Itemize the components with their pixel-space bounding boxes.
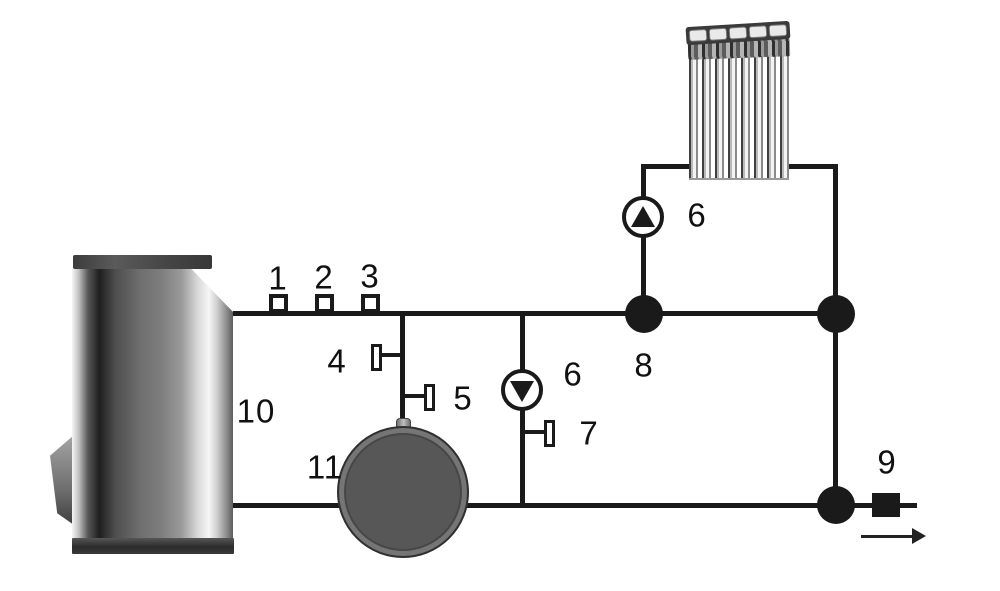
radiator-cap [749,25,768,38]
boiler-top-cap [73,255,212,269]
label-4: 4 [327,345,346,378]
radiator-right-connection-pipe [786,164,838,169]
sensor-5-stem [404,394,426,398]
label-3: 3 [360,260,379,293]
label-9: 9 [877,446,896,479]
boiler [50,253,240,556]
pipe-tapping-2 [315,294,334,313]
boiler-body [72,267,233,553]
label-5: 5 [453,382,472,415]
outlet-fitting [872,493,900,517]
label-8: 8 [634,349,653,382]
radiator-cap [709,28,728,41]
junction-node-bottom-right [817,486,855,524]
junction-node-top-right [817,295,855,333]
sensor-7 [544,420,555,447]
radiator [686,20,792,180]
radiator-cap [769,24,788,37]
label-7: 7 [579,417,598,450]
pump-boiler-circuit [501,369,543,411]
flow-direction-arrowhead-icon [912,528,926,544]
pipe-tapping-1 [269,294,288,313]
junction-node-8 [625,295,663,333]
sensor-4-stem [382,353,402,357]
pump-flow-down-icon [510,381,534,402]
pump-flow-up-icon [631,206,655,227]
radiator-left-riser-pipe [641,166,646,314]
boiler-base [72,538,234,554]
radiator-cap [689,29,708,42]
heating-schematic-canvas: 1 2 3 4 5 6 6 7 8 9 10 11 [0,0,1000,591]
boiler-bracket [50,435,74,525]
radiator-cap [729,26,748,39]
flow-direction-arrow-icon [861,535,915,538]
sensor-7-stem [524,430,546,434]
radiator-fins [689,56,789,180]
pipe-tapping-3 [361,294,380,313]
return-pipe-bottom [233,503,837,508]
label-10: 10 [237,395,276,428]
label-2: 2 [314,261,333,294]
sensor-4 [371,344,382,371]
label-11: 11 [307,451,343,484]
expansion-tank [337,426,469,558]
label-6-lower: 6 [563,358,582,391]
sensor-5 [424,384,435,411]
label-1: 1 [268,262,287,295]
expansion-tank-branch-pipe [400,314,405,426]
right-riser-pipe [833,164,838,506]
label-6-upper: 6 [687,199,706,232]
pump-radiator-circuit [622,196,664,238]
